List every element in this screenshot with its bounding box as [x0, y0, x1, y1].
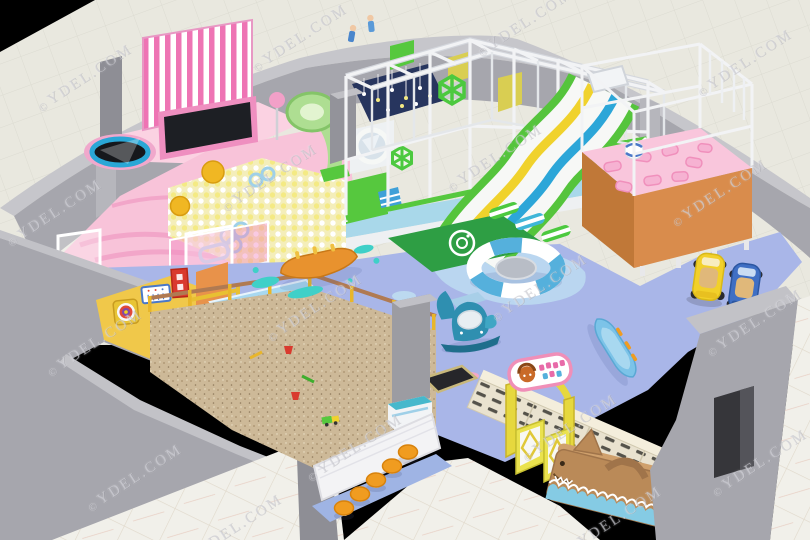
- gray-pillar: [392, 294, 430, 406]
- hex-wheel: [440, 76, 464, 104]
- big-yellow-ball: [171, 197, 190, 216]
- hex-wheel: [393, 147, 412, 169]
- gate-pillar: [506, 382, 516, 457]
- wall-niche-light: [740, 386, 754, 470]
- gray-column: [330, 88, 356, 164]
- pink-ball-topper: [269, 92, 285, 108]
- render-canvas: [0, 0, 810, 540]
- dartboard: [113, 299, 139, 325]
- big-yellow-ball: [202, 161, 224, 183]
- playground-render: ©YDEL.COM ©YDEL.COM ©YDEL.COM ©YDEL.COM …: [0, 0, 810, 540]
